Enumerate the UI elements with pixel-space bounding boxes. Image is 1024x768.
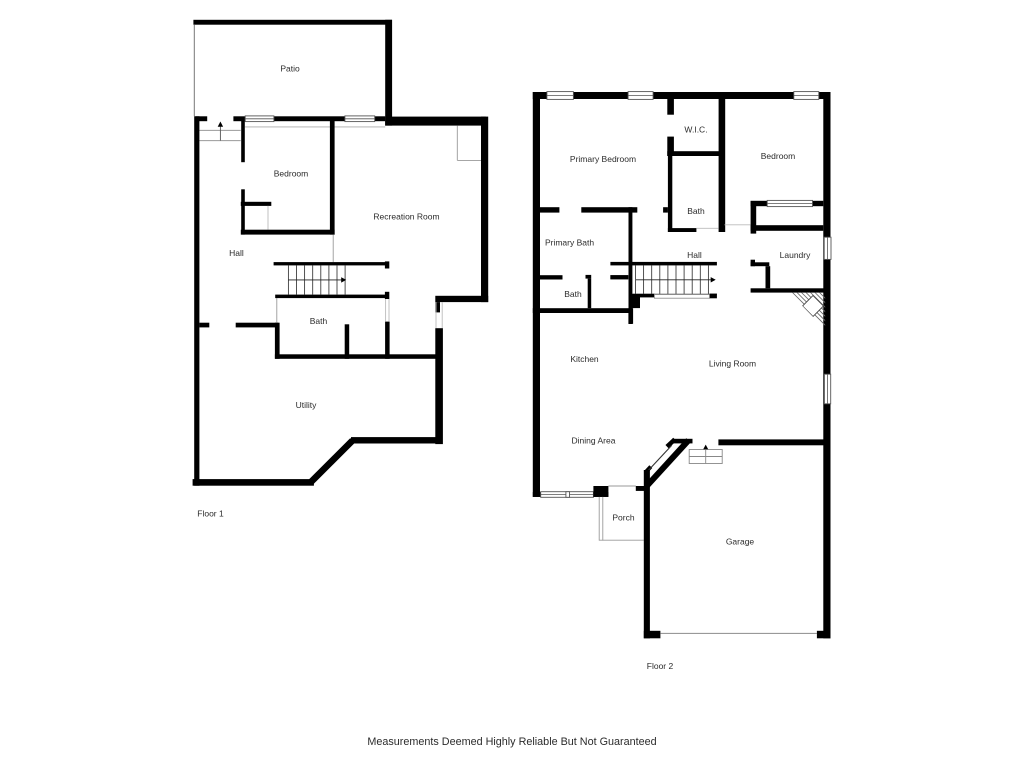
svg-text:Living Room: Living Room (709, 359, 756, 369)
svg-text:Kitchen: Kitchen (570, 354, 599, 364)
svg-text:Recreation Room: Recreation Room (373, 212, 439, 222)
svg-text:Hall: Hall (687, 250, 702, 260)
svg-text:Measurements Deemed Highly Rel: Measurements Deemed Highly Reliable But … (367, 736, 656, 748)
svg-text:Bedroom: Bedroom (274, 169, 309, 179)
svg-text:Patio: Patio (280, 64, 300, 74)
svg-text:Hall: Hall (229, 248, 244, 258)
svg-text:Bath: Bath (310, 316, 328, 326)
svg-text:Floor 1: Floor 1 (197, 509, 224, 519)
svg-text:Porch: Porch (612, 513, 634, 523)
svg-text:Garage: Garage (726, 537, 755, 547)
svg-text:Laundry: Laundry (780, 250, 811, 260)
svg-text:Dining Area: Dining Area (572, 436, 616, 446)
svg-text:W.I.C.: W.I.C. (684, 125, 707, 135)
svg-text:Primary Bedroom: Primary Bedroom (570, 154, 636, 164)
svg-text:Floor 2: Floor 2 (647, 661, 674, 671)
svg-text:Bath: Bath (687, 206, 705, 216)
svg-text:Bedroom: Bedroom (761, 151, 796, 161)
svg-text:Primary Bath: Primary Bath (545, 238, 594, 248)
svg-text:Bath: Bath (564, 289, 582, 299)
svg-text:Utility: Utility (296, 400, 318, 410)
